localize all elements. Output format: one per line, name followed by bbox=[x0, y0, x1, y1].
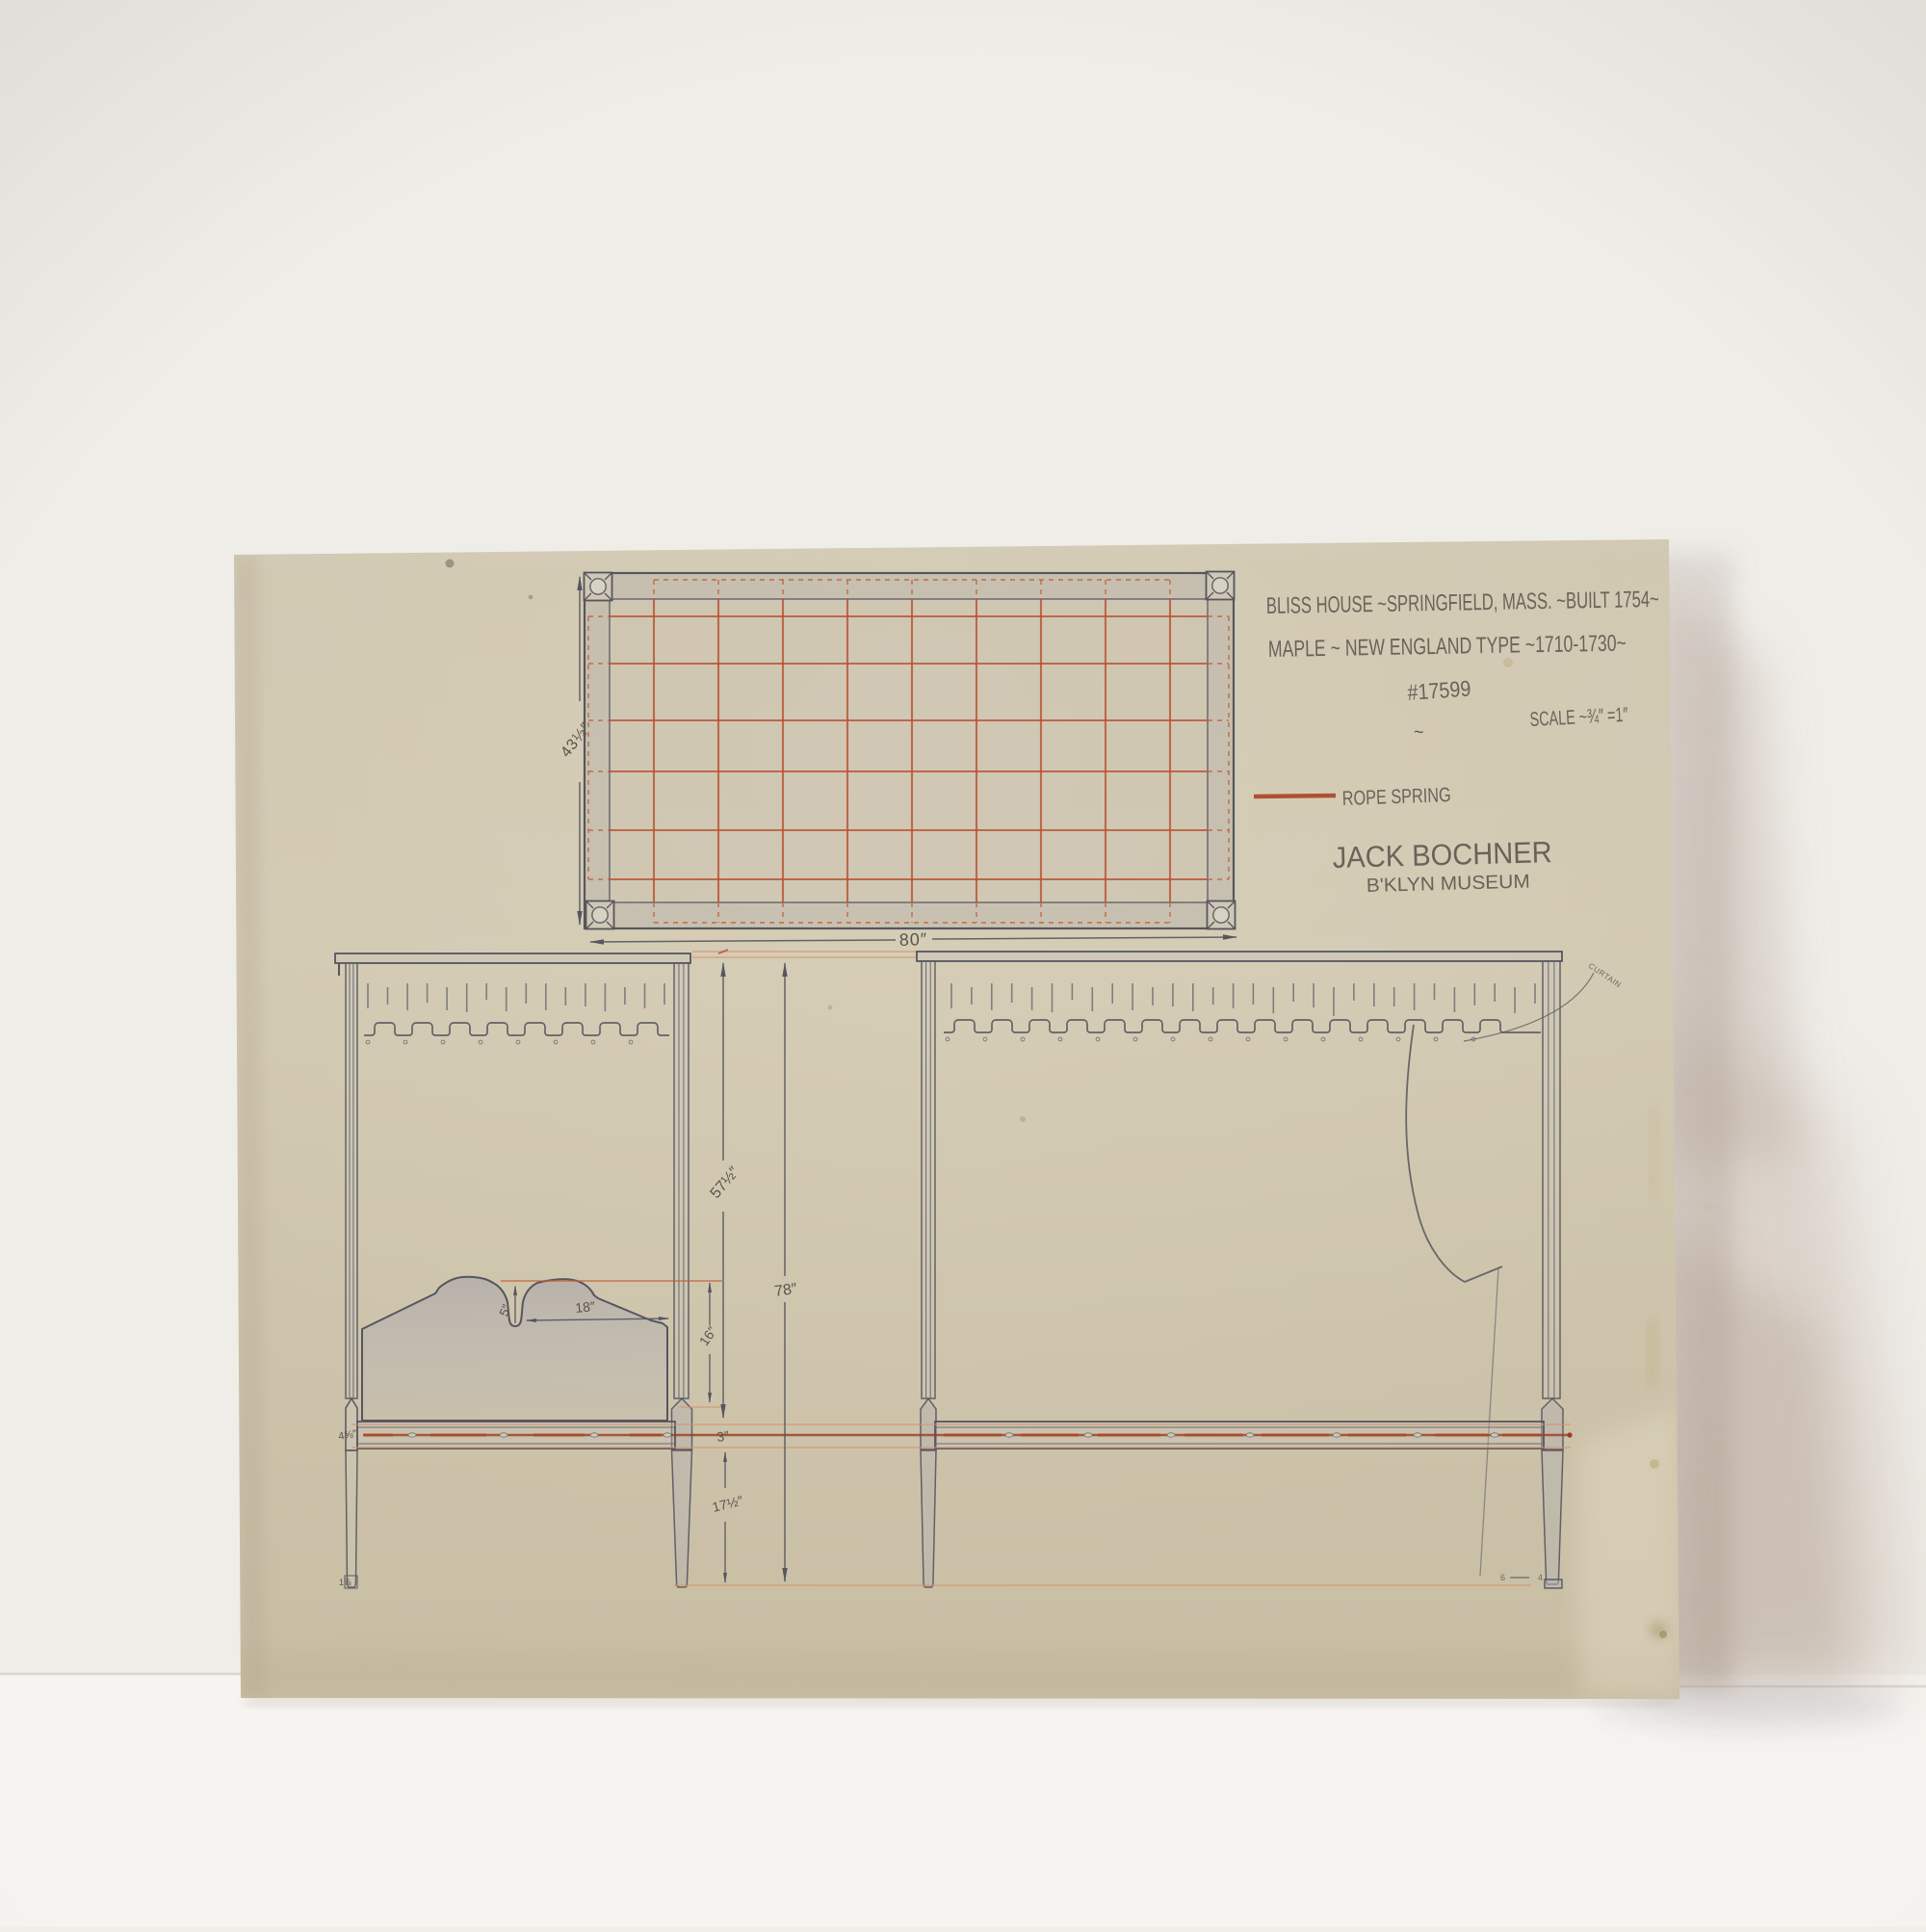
svg-text:#17599: #17599 bbox=[1407, 675, 1472, 705]
svg-text:JACK BOCHNER: JACK BOCHNER bbox=[1332, 835, 1552, 875]
svg-text:~: ~ bbox=[1414, 722, 1424, 742]
svg-text:80″: 80″ bbox=[898, 929, 927, 950]
svg-text:B'KLYN MUSEUM: B'KLYN MUSEUM bbox=[1366, 872, 1531, 897]
svg-text:ROPE SPRING: ROPE SPRING bbox=[1341, 784, 1451, 810]
svg-text:1⅝: 1⅝ bbox=[339, 1578, 351, 1587]
svg-text:3″: 3″ bbox=[716, 1427, 730, 1445]
svg-text:4: 4 bbox=[1538, 1573, 1543, 1582]
svg-text:18″: 18″ bbox=[575, 1298, 596, 1316]
svg-text:6: 6 bbox=[1500, 1573, 1505, 1582]
svg-text:78″: 78″ bbox=[773, 1281, 798, 1300]
